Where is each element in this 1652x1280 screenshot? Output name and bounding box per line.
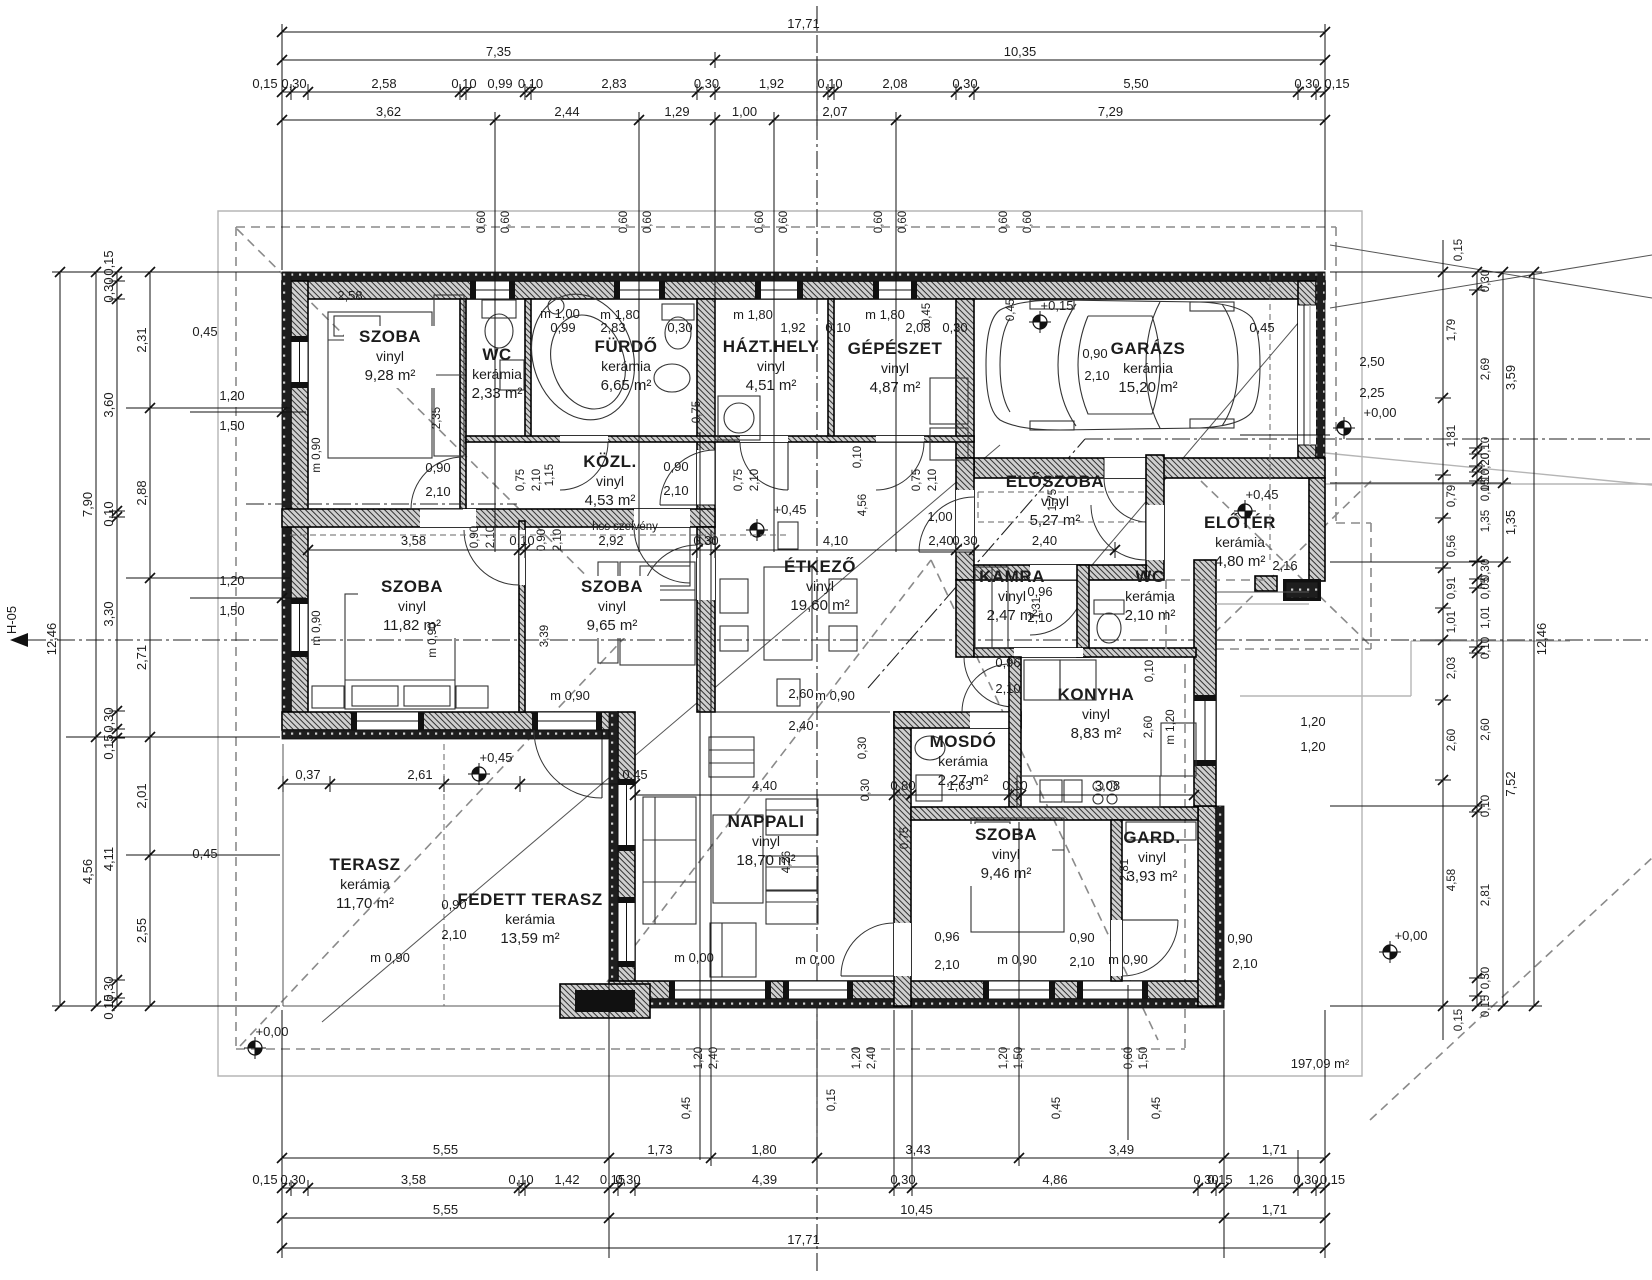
svg-text:0,30: 0,30 (952, 533, 977, 548)
svg-text:1,79: 1,79 (1446, 319, 1458, 341)
svg-text:vinyl: vinyl (596, 473, 624, 489)
svg-text:vinyl: vinyl (376, 348, 404, 364)
svg-text:5,55: 5,55 (433, 1202, 458, 1217)
svg-text:3,60: 3,60 (101, 392, 116, 417)
svg-text:+0,00: +0,00 (256, 1024, 289, 1039)
svg-text:hss szelvény: hss szelvény (592, 521, 658, 533)
svg-text:vinyl: vinyl (752, 833, 780, 849)
svg-text:1,92: 1,92 (759, 76, 784, 91)
svg-text:0,75: 0,75 (515, 469, 527, 491)
svg-text:2,44: 2,44 (554, 104, 579, 119)
svg-text:0,10: 0,10 (825, 320, 850, 335)
svg-text:0,60: 0,60 (778, 211, 790, 233)
svg-text:1,63: 1,63 (947, 778, 972, 793)
svg-text:m 0,90: m 0,90 (370, 950, 410, 965)
svg-text:0,10: 0,10 (1002, 778, 1027, 793)
svg-text:0,45: 0,45 (681, 1097, 693, 1119)
svg-text:0,60: 0,60 (642, 211, 654, 233)
svg-text:GÉPÉSZET: GÉPÉSZET (848, 339, 943, 358)
svg-text:1,20: 1,20 (219, 573, 244, 588)
svg-text:1,42: 1,42 (554, 1172, 579, 1187)
svg-text:1,50: 1,50 (1013, 1047, 1025, 1069)
svg-text:1,50: 1,50 (219, 603, 244, 618)
svg-text:2,10: 2,10 (995, 681, 1020, 696)
svg-text:2,10: 2,10 (1232, 956, 1257, 971)
svg-text:7,29: 7,29 (1098, 104, 1123, 119)
svg-text:0,10: 0,10 (518, 76, 543, 91)
svg-text:0,10: 0,10 (508, 1172, 533, 1187)
svg-text:0,37: 0,37 (295, 767, 320, 782)
svg-text:1,75: 1,75 (1047, 489, 1059, 511)
svg-text:0,10: 0,10 (817, 76, 842, 91)
svg-text:1,00: 1,00 (732, 104, 757, 119)
svg-text:1,71: 1,71 (1262, 1202, 1287, 1217)
svg-text:2,10: 2,10 (1084, 368, 1109, 383)
svg-text:0,90: 0,90 (441, 897, 466, 912)
svg-text:0,90: 0,90 (1227, 931, 1252, 946)
svg-text:4,11: 4,11 (101, 847, 116, 871)
svg-text:7,90: 7,90 (80, 492, 95, 517)
svg-text:+0,00: +0,00 (1364, 405, 1397, 420)
svg-text:m 0,90: m 0,90 (311, 610, 323, 645)
svg-text:0,30: 0,30 (101, 277, 116, 302)
svg-text:2,33 m²: 2,33 m² (472, 385, 523, 402)
svg-text:3,39: 3,39 (539, 625, 551, 647)
svg-text:SZOBA: SZOBA (975, 825, 1037, 844)
svg-text:5,27 m²: 5,27 m² (1030, 512, 1081, 529)
svg-text:MOSDÓ: MOSDÓ (930, 732, 997, 751)
svg-text:2,10: 2,10 (927, 469, 939, 491)
svg-text:2,10: 2,10 (425, 484, 450, 499)
svg-text:m 0,00: m 0,00 (674, 950, 714, 965)
svg-text:5,50: 5,50 (1123, 76, 1148, 91)
svg-text:0,15: 0,15 (1320, 1172, 1345, 1187)
svg-text:13,59 m²: 13,59 m² (500, 930, 559, 947)
svg-text:0,60: 0,60 (897, 211, 909, 233)
svg-text:2,10: 2,10 (663, 483, 688, 498)
svg-text:0,45: 0,45 (192, 846, 217, 861)
svg-text:0,96: 0,96 (995, 655, 1020, 670)
svg-text:0,30: 0,30 (1293, 1172, 1318, 1187)
svg-text:0,10: 0,10 (1144, 660, 1156, 682)
svg-text:4,80 m²: 4,80 m² (1215, 553, 1266, 570)
svg-text:0,60: 0,60 (754, 211, 766, 233)
svg-text:0,60: 0,60 (500, 211, 512, 233)
svg-text:1,00: 1,00 (927, 509, 952, 524)
svg-text:2,60: 2,60 (1480, 718, 1492, 740)
svg-text:0,45: 0,45 (192, 324, 217, 339)
svg-text:2,60: 2,60 (1446, 729, 1458, 751)
svg-text:0,15: 0,15 (101, 994, 116, 1019)
svg-text:0,45: 0,45 (1249, 320, 1274, 335)
svg-text:6,65 m²: 6,65 m² (601, 377, 652, 394)
svg-text:10,45: 10,45 (900, 1202, 933, 1217)
svg-text:+0,00: +0,00 (1395, 928, 1428, 943)
svg-text:m 0,90: m 0,90 (427, 622, 439, 657)
svg-text:0,30: 0,30 (615, 1172, 640, 1187)
svg-text:2,10: 2,10 (531, 469, 543, 491)
svg-text:0,45: 0,45 (1005, 299, 1017, 321)
svg-text:0,60: 0,60 (476, 211, 488, 233)
svg-text:3,58: 3,58 (401, 1172, 426, 1187)
svg-text:2,58: 2,58 (337, 288, 362, 303)
svg-text:0,99: 0,99 (550, 320, 575, 335)
svg-text:m 0,90: m 0,90 (550, 688, 590, 703)
svg-text:m 1,20: m 1,20 (1165, 709, 1177, 744)
svg-text:0,96: 0,96 (1027, 584, 1052, 599)
svg-text:vinyl: vinyl (998, 588, 1026, 604)
svg-text:FÜRDŐ: FÜRDŐ (595, 337, 658, 356)
svg-text:11,70 m²: 11,70 m² (336, 895, 394, 912)
svg-text:2,31: 2,31 (134, 327, 149, 352)
svg-text:9,46 m²: 9,46 m² (981, 865, 1032, 882)
svg-text:0,90: 0,90 (663, 459, 688, 474)
svg-text:0,79: 0,79 (1446, 485, 1458, 507)
svg-text:0,10: 0,10 (101, 501, 116, 526)
svg-text:1,50: 1,50 (1138, 1047, 1150, 1069)
svg-text:0,60: 0,60 (618, 211, 630, 233)
svg-text:SZOBA: SZOBA (359, 327, 421, 346)
svg-text:2,16: 2,16 (1272, 558, 1297, 573)
svg-text:2,81: 2,81 (1119, 859, 1131, 881)
svg-text:+0,15: +0,15 (1041, 298, 1074, 313)
svg-text:2,10: 2,10 (934, 957, 959, 972)
svg-text:4,26: 4,26 (781, 851, 793, 873)
svg-text:GARÁZS: GARÁZS (1111, 339, 1186, 358)
svg-text:2,07: 2,07 (822, 104, 847, 119)
svg-text:kerámia: kerámia (938, 753, 988, 769)
svg-text:2,83: 2,83 (601, 76, 626, 91)
svg-text:1,20: 1,20 (1300, 714, 1325, 729)
svg-text:m 0,90: m 0,90 (997, 952, 1037, 967)
svg-text:197,09 m²: 197,09 m² (1291, 1056, 1350, 1071)
svg-text:0,05: 0,05 (1480, 577, 1492, 599)
svg-text:+0,45: +0,45 (1246, 487, 1279, 502)
svg-text:4,53 m²: 4,53 m² (585, 492, 636, 509)
svg-text:vinyl: vinyl (881, 360, 909, 376)
svg-text:0,75: 0,75 (911, 469, 923, 491)
svg-text:2,71: 2,71 (134, 645, 149, 670)
svg-text:0,60: 0,60 (1022, 211, 1034, 233)
svg-text:vinyl: vinyl (757, 358, 785, 374)
svg-text:kerámia: kerámia (1215, 534, 1265, 550)
svg-text:1,20: 1,20 (998, 1047, 1010, 1069)
svg-text:2,08: 2,08 (882, 76, 907, 91)
svg-text:0,30: 0,30 (101, 707, 116, 732)
svg-text:1,20: 1,20 (1300, 739, 1325, 754)
svg-text:1,73: 1,73 (647, 1142, 672, 1157)
svg-text:2,58: 2,58 (371, 76, 396, 91)
svg-text:m 0,90: m 0,90 (311, 437, 323, 472)
svg-text:2,81: 2,81 (1480, 884, 1492, 906)
svg-text:TERASZ: TERASZ (330, 855, 401, 874)
svg-text:5,55: 5,55 (433, 1142, 458, 1157)
svg-text:0,80: 0,80 (890, 778, 915, 793)
svg-text:3,43: 3,43 (905, 1142, 930, 1157)
svg-text:2,55: 2,55 (134, 918, 149, 943)
svg-text:HÁZT.HELY: HÁZT.HELY (723, 337, 820, 356)
svg-text:0,99: 0,99 (487, 76, 512, 91)
svg-text:4,40: 4,40 (752, 778, 777, 793)
svg-text:17,71: 17,71 (787, 16, 820, 31)
svg-text:2,61: 2,61 (407, 767, 432, 782)
svg-text:vinyl: vinyl (398, 598, 426, 614)
svg-text:10,35: 10,35 (1004, 44, 1037, 59)
svg-text:1,92: 1,92 (780, 320, 805, 335)
svg-text:3,49: 3,49 (1109, 1142, 1134, 1157)
svg-text:0,15: 0,15 (1453, 239, 1465, 261)
svg-text:0,10: 0,10 (1480, 637, 1492, 659)
svg-text:kerámia: kerámia (472, 366, 522, 382)
svg-text:2,10: 2,10 (552, 529, 564, 551)
svg-text:12,46: 12,46 (1534, 623, 1549, 656)
svg-text:9,65 m²: 9,65 m² (587, 617, 638, 634)
svg-text:0,90: 0,90 (425, 460, 450, 475)
svg-text:0,30: 0,30 (694, 76, 719, 91)
svg-text:2,40: 2,40 (928, 533, 953, 548)
svg-text:0,30: 0,30 (942, 320, 967, 335)
svg-text:kerámia: kerámia (1123, 360, 1173, 376)
svg-text:0,30: 0,30 (1480, 270, 1492, 292)
svg-text:2,25: 2,25 (1359, 385, 1384, 400)
svg-text:NAPPALI: NAPPALI (728, 812, 805, 831)
svg-text:1,71: 1,71 (1262, 1142, 1287, 1157)
svg-text:2,50: 2,50 (1359, 354, 1384, 369)
svg-text:vinyl: vinyl (806, 578, 834, 594)
svg-text:0,15: 0,15 (1453, 1009, 1465, 1031)
svg-text:WC: WC (482, 345, 511, 364)
svg-text:2,10 m²: 2,10 m² (1125, 607, 1176, 624)
svg-text:0,60: 0,60 (873, 211, 885, 233)
svg-text:SZOBA: SZOBA (381, 577, 443, 596)
svg-text:ÉTKEZŐ: ÉTKEZŐ (784, 557, 856, 576)
svg-text:7,35: 7,35 (486, 44, 511, 59)
svg-text:0,15: 0,15 (826, 1089, 838, 1111)
svg-text:3,62: 3,62 (376, 104, 401, 119)
svg-text:0,30: 0,30 (280, 1172, 305, 1187)
svg-text:0,30: 0,30 (952, 76, 977, 91)
svg-text:2,88: 2,88 (134, 480, 149, 505)
svg-text:0,45: 0,45 (1051, 1097, 1063, 1119)
svg-text:2,10: 2,10 (749, 469, 761, 491)
svg-text:0,30: 0,30 (667, 320, 692, 335)
svg-text:0,15: 0,15 (1480, 479, 1492, 501)
svg-text:0,60: 0,60 (998, 211, 1010, 233)
svg-text:15,20 m²: 15,20 m² (1118, 379, 1177, 396)
svg-text:kerámia: kerámia (340, 876, 390, 892)
svg-text:2,40: 2,40 (788, 718, 813, 733)
svg-text:1,31: 1,31 (1031, 597, 1043, 619)
svg-text:vinyl: vinyl (598, 598, 626, 614)
svg-text:m 1,80: m 1,80 (733, 307, 773, 322)
svg-text:1,50: 1,50 (219, 418, 244, 433)
svg-text:1,35: 1,35 (1480, 510, 1492, 532)
svg-text:0,30: 0,30 (860, 779, 872, 801)
svg-text:0,60: 0,60 (1123, 1047, 1135, 1069)
svg-text:FEDETT TERASZ: FEDETT TERASZ (457, 890, 602, 909)
svg-text:0,45: 0,45 (622, 767, 647, 782)
svg-text:19,60 m²: 19,60 m² (790, 597, 849, 614)
svg-text:0,15: 0,15 (252, 1172, 277, 1187)
svg-text:0,10: 0,10 (451, 76, 476, 91)
svg-text:2,35: 2,35 (431, 407, 443, 429)
svg-text:2,03: 2,03 (1446, 657, 1458, 679)
svg-text:SZOBA: SZOBA (581, 577, 643, 596)
svg-text:0,10: 0,10 (852, 446, 864, 468)
svg-text:2,10: 2,10 (1069, 954, 1094, 969)
svg-text:1,01: 1,01 (1480, 606, 1492, 628)
svg-text:GARD.: GARD. (1123, 828, 1180, 847)
svg-text:9,28 m²: 9,28 m² (365, 367, 416, 384)
svg-text:2,60: 2,60 (788, 686, 813, 701)
svg-text:0,30: 0,30 (1480, 967, 1492, 989)
svg-text:0,30: 0,30 (1294, 76, 1319, 91)
svg-text:0,91: 0,91 (1446, 577, 1458, 599)
svg-text:7,52: 7,52 (1503, 771, 1518, 796)
svg-text:1,20: 1,20 (693, 1047, 705, 1069)
svg-text:m 0,00: m 0,00 (795, 952, 835, 967)
svg-text:1,20: 1,20 (851, 1047, 863, 1069)
svg-text:vinyl: vinyl (992, 846, 1020, 862)
svg-text:3,93 m²: 3,93 m² (1127, 868, 1178, 885)
svg-text:0,90: 0,90 (1069, 930, 1094, 945)
svg-text:m 1,00: m 1,00 (540, 306, 580, 321)
svg-text:0,15: 0,15 (101, 734, 116, 759)
svg-text:ELŐSZOBA: ELŐSZOBA (1006, 472, 1104, 491)
svg-text:3,59: 3,59 (1503, 365, 1518, 390)
svg-text:4,10: 4,10 (823, 533, 848, 548)
svg-text:kerámia: kerámia (1125, 588, 1175, 604)
svg-text:1,01: 1,01 (1446, 611, 1458, 633)
svg-text:4,58: 4,58 (1446, 869, 1458, 891)
svg-text:KÖZL.: KÖZL. (583, 452, 637, 471)
svg-text:2,10: 2,10 (441, 927, 466, 942)
svg-text:0,45: 0,45 (1151, 1097, 1163, 1119)
svg-text:0,96: 0,96 (934, 929, 959, 944)
svg-text:0,75: 0,75 (733, 469, 745, 491)
svg-text:4,56: 4,56 (80, 859, 95, 884)
svg-text:1,20: 1,20 (219, 388, 244, 403)
svg-text:4,39: 4,39 (752, 1172, 777, 1187)
svg-text:+0,45: +0,45 (774, 502, 807, 517)
svg-text:1,15: 1,15 (544, 464, 556, 486)
svg-text:0,30: 0,30 (281, 76, 306, 91)
svg-text:WC: WC (1135, 567, 1164, 586)
svg-text:m 1,80: m 1,80 (865, 307, 905, 322)
svg-text:2,01: 2,01 (134, 783, 149, 808)
svg-text:12,46: 12,46 (44, 623, 59, 656)
svg-text:m 0,90: m 0,90 (1108, 952, 1148, 967)
svg-text:3,30: 3,30 (101, 601, 116, 626)
svg-text:0,45: 0,45 (921, 303, 933, 325)
svg-text:vinyl: vinyl (1082, 706, 1110, 722)
svg-text:H-05: H-05 (4, 606, 19, 634)
svg-text:1,29: 1,29 (664, 104, 689, 119)
svg-text:2,40: 2,40 (1032, 533, 1057, 548)
svg-text:4,86: 4,86 (1042, 1172, 1067, 1187)
svg-text:17,71: 17,71 (787, 1232, 820, 1247)
svg-text:0,75: 0,75 (899, 827, 911, 849)
svg-text:4,51 m²: 4,51 m² (746, 377, 797, 394)
svg-text:0,15: 0,15 (1207, 1172, 1232, 1187)
svg-text:m 0,90: m 0,90 (815, 688, 855, 703)
svg-text:2,60: 2,60 (1143, 716, 1155, 738)
svg-text:+0,45: +0,45 (480, 750, 513, 765)
svg-text:vinyl: vinyl (1138, 849, 1166, 865)
svg-text:4,56: 4,56 (857, 494, 869, 516)
svg-text:0,90: 0,90 (469, 526, 481, 548)
svg-text:3,08: 3,08 (1095, 778, 1120, 793)
svg-text:0,90: 0,90 (536, 529, 548, 551)
svg-text:kerámia: kerámia (601, 358, 651, 374)
svg-text:0,56: 0,56 (1446, 535, 1458, 557)
svg-text:2,83: 2,83 (600, 320, 625, 335)
svg-text:0,15: 0,15 (1324, 76, 1349, 91)
svg-text:1,26: 1,26 (1248, 1172, 1273, 1187)
svg-text:1,80: 1,80 (751, 1142, 776, 1157)
svg-text:1,35: 1,35 (1503, 510, 1518, 535)
svg-text:0,15: 0,15 (252, 76, 277, 91)
svg-text:2,40: 2,40 (708, 1047, 720, 1069)
svg-text:2,10: 2,10 (485, 526, 497, 548)
svg-text:8,83 m²: 8,83 m² (1071, 725, 1122, 742)
svg-text:1,81: 1,81 (1446, 425, 1458, 447)
svg-text:0,75: 0,75 (691, 401, 703, 423)
svg-text:kerámia: kerámia (505, 911, 555, 927)
svg-text:0,90: 0,90 (1082, 346, 1107, 361)
svg-text:2,69: 2,69 (1480, 358, 1492, 380)
svg-text:0,30: 0,30 (857, 737, 869, 759)
svg-text:4,87 m²: 4,87 m² (870, 379, 921, 396)
svg-text:2,40: 2,40 (866, 1047, 878, 1069)
